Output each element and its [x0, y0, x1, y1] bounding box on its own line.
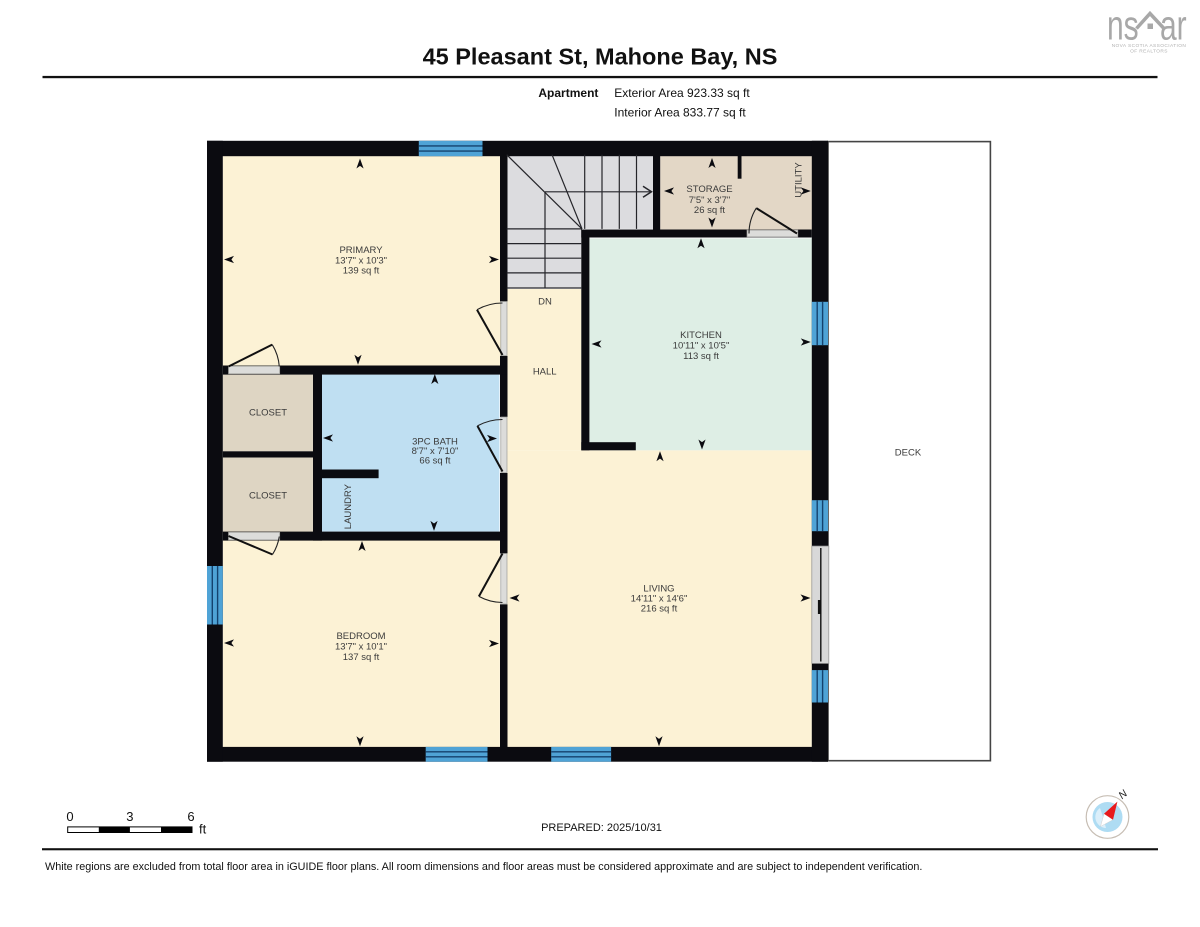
svg-text:PRIMARY: PRIMARY [339, 245, 383, 256]
svg-text:STORAGE: STORAGE [686, 184, 732, 195]
svg-text:OF REALTORS: OF REALTORS [1130, 48, 1168, 54]
svg-text:Apartment: Apartment [538, 86, 598, 100]
svg-text:26 sq ft: 26 sq ft [694, 205, 726, 216]
svg-text:45 Pleasant St, Mahone Bay, NS: 45 Pleasant St, Mahone Bay, NS [423, 43, 778, 69]
svg-text:3: 3 [126, 809, 133, 824]
svg-text:HALL: HALL [533, 366, 557, 377]
svg-text:216 sq ft: 216 sq ft [641, 604, 678, 615]
svg-text:66 sq ft: 66 sq ft [419, 455, 451, 466]
svg-text:0: 0 [66, 809, 73, 824]
svg-text:KITCHEN: KITCHEN [680, 330, 722, 341]
svg-text:113 sq ft: 113 sq ft [683, 351, 719, 362]
svg-text:White regions are excluded fro: White regions are excluded from total fl… [45, 861, 922, 873]
svg-text:PREPARED: 2025/10/31: PREPARED: 2025/10/31 [541, 822, 662, 834]
svg-text:ft: ft [199, 822, 207, 837]
svg-text:10'11" x 10'5": 10'11" x 10'5" [673, 341, 730, 352]
svg-text:Exterior Area 923.33 sq ft: Exterior Area 923.33 sq ft [614, 86, 750, 100]
svg-text:CLOSET: CLOSET [249, 490, 287, 501]
svg-text:13'7" x 10'1": 13'7" x 10'1" [335, 641, 387, 652]
svg-text:NOVA SCOTIA ASSOCIATION: NOVA SCOTIA ASSOCIATION [1112, 43, 1187, 49]
svg-text:Interior Area 833.77 sq ft: Interior Area 833.77 sq ft [614, 106, 746, 120]
svg-text:ar: ar [1160, 2, 1187, 49]
svg-text:CLOSET: CLOSET [249, 407, 287, 418]
svg-text:139 sq ft: 139 sq ft [343, 266, 380, 277]
svg-text:LAUNDRY: LAUNDRY [343, 483, 354, 529]
svg-text:137 sq ft: 137 sq ft [343, 652, 380, 663]
svg-text:BEDROOM: BEDROOM [336, 631, 385, 642]
svg-text:DN: DN [538, 296, 552, 307]
svg-text:6: 6 [187, 809, 194, 824]
svg-text:DECK: DECK [895, 447, 922, 458]
svg-text:ns: ns [1107, 2, 1139, 49]
